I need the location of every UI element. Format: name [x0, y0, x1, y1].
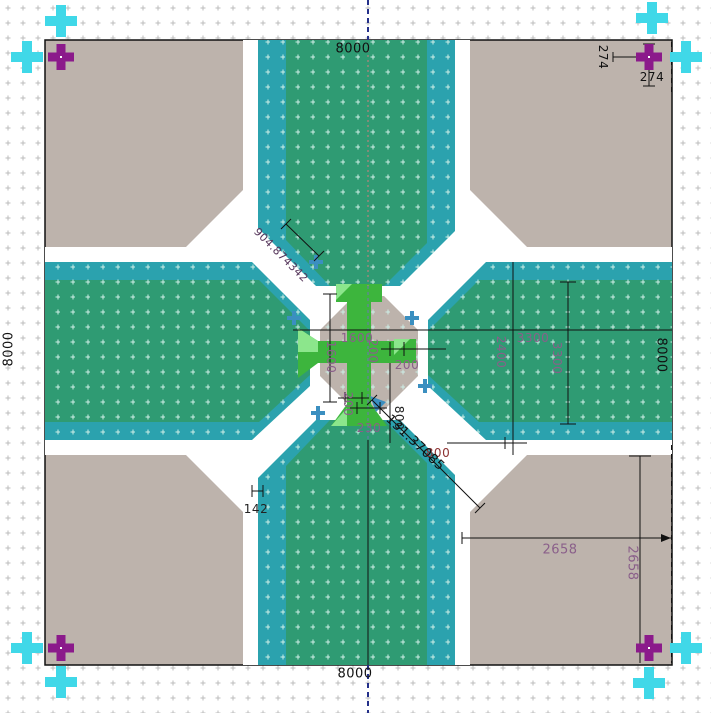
- layout-drawing: [0, 0, 711, 713]
- dim-label-stub-width: 230: [357, 422, 381, 434]
- dim-label-core-height: 1600: [325, 341, 337, 374]
- dim-label-stub-length: 200: [342, 392, 354, 416]
- drawing-canvas[interactable]: 8000 8000 8000 8000 274 274 2658 2658 14…: [0, 0, 711, 713]
- dim-label-span-vertical: 3300: [551, 342, 563, 375]
- dim-label-quadrant-width: 2658: [542, 544, 577, 557]
- dim-label-die-right: 8000: [655, 337, 668, 372]
- dim-label-span-horizontal: 3300: [517, 332, 550, 344]
- dim-label-die-top: 8000: [335, 43, 370, 56]
- dim-label-die-left: 8000: [3, 331, 16, 366]
- dim-label-via-offset: 2400: [495, 336, 507, 369]
- dim-label-bar-width: 200: [367, 339, 379, 363]
- dim-label-street-width: 142: [244, 503, 268, 515]
- dim-label-die-bottom: 8000: [337, 668, 372, 681]
- dim-label-fiducial-h: 274: [640, 71, 664, 83]
- dim-label-fiducial-v: 274: [597, 45, 609, 69]
- dim-label-quadrant-height: 2658: [626, 545, 639, 580]
- dim-label-pad-width: 200: [395, 359, 419, 371]
